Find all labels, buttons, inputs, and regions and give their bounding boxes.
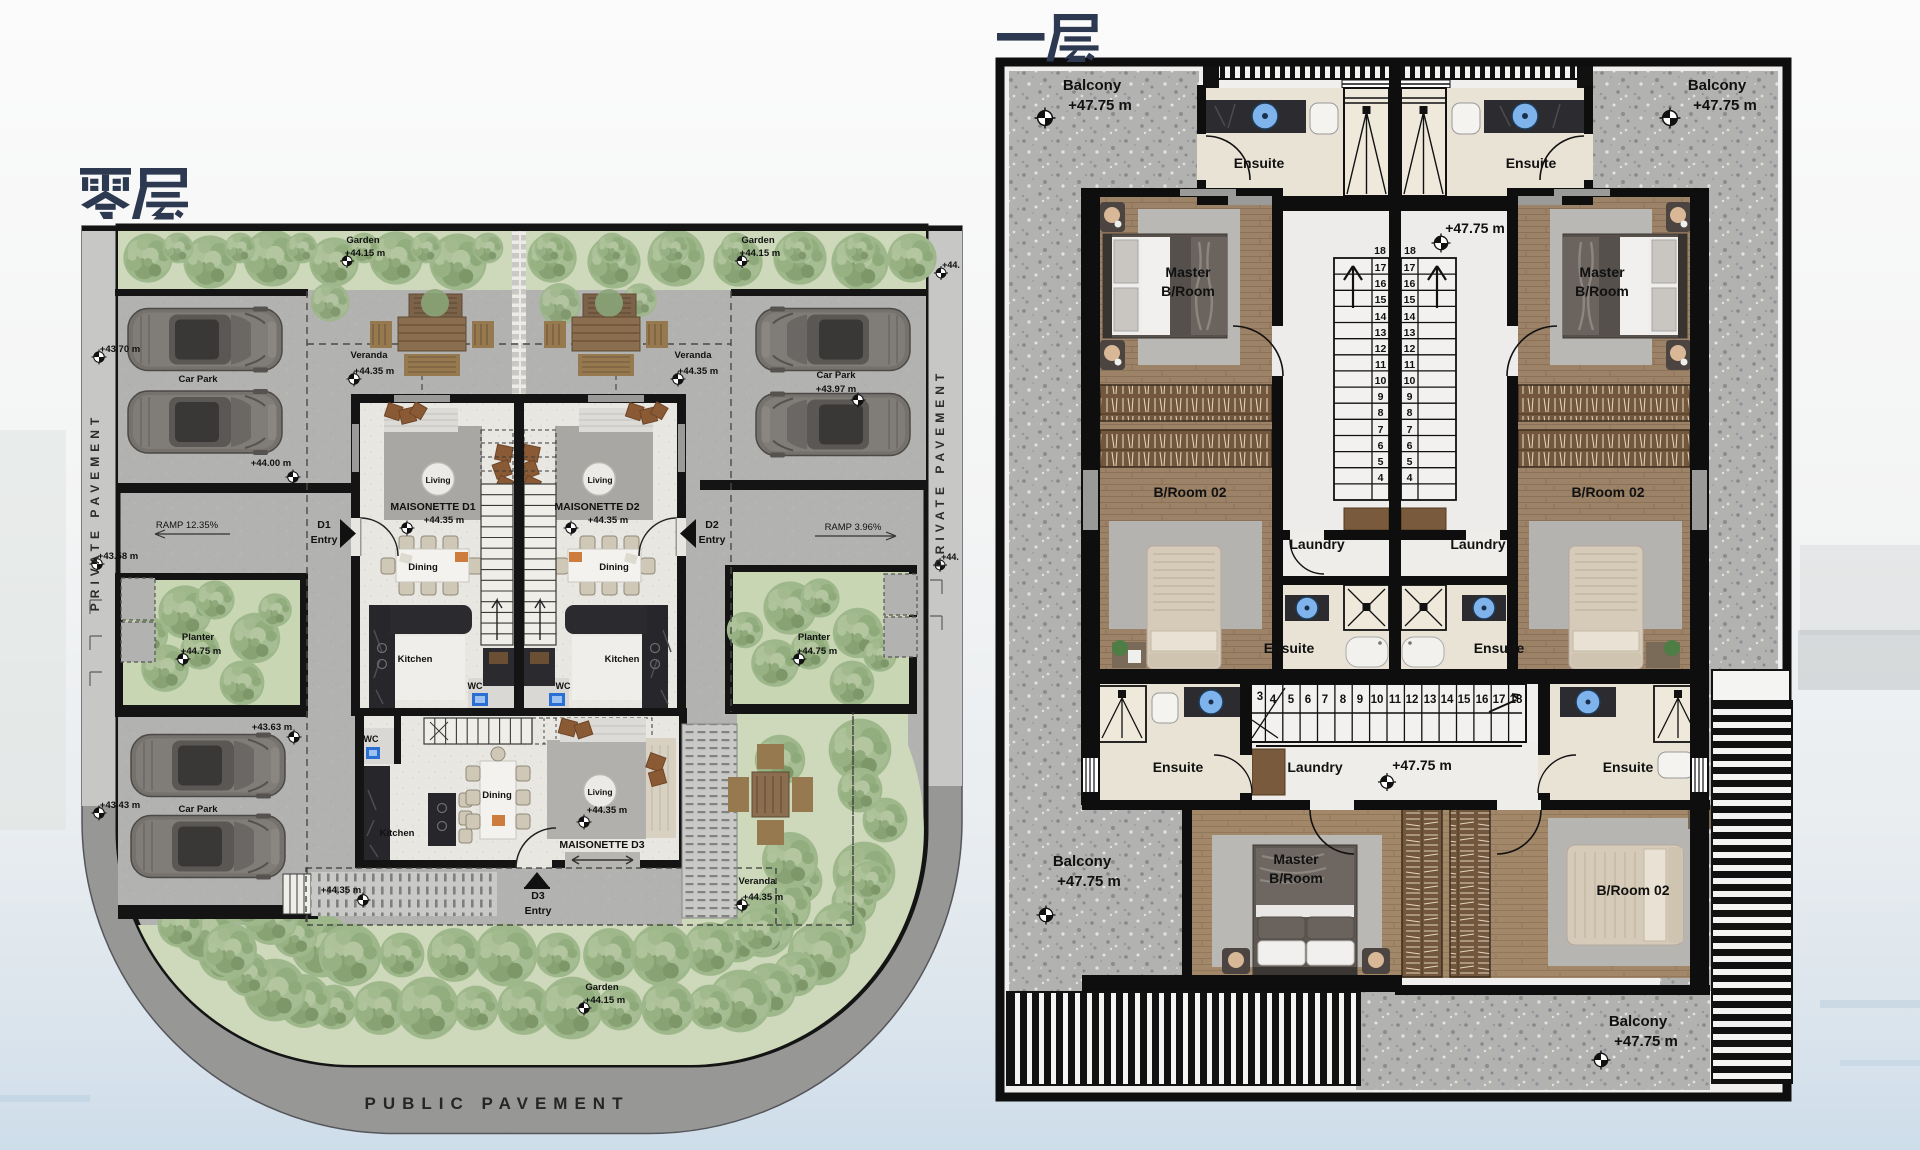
svg-text:12: 12 xyxy=(1406,694,1419,706)
svg-text:Car Park: Car Park xyxy=(816,370,856,381)
svg-text:7: 7 xyxy=(1407,424,1413,436)
svg-text:10: 10 xyxy=(1404,375,1416,387)
svg-text:18: 18 xyxy=(1510,694,1523,706)
svg-text:+47.75 m: +47.75 m xyxy=(1068,97,1132,114)
svg-text:Entry: Entry xyxy=(699,534,726,546)
svg-text:10: 10 xyxy=(1371,694,1384,706)
svg-text:Living: Living xyxy=(587,787,612,797)
svg-text:Master: Master xyxy=(1273,851,1319,867)
svg-text:5: 5 xyxy=(1378,456,1384,468)
svg-text:RAMP 12.35%: RAMP 12.35% xyxy=(156,520,219,531)
svg-text:WC: WC xyxy=(556,681,571,691)
svg-text:D3: D3 xyxy=(531,890,545,902)
svg-text:Garden: Garden xyxy=(585,982,618,993)
svg-text:+44.35 m: +44.35 m xyxy=(354,366,394,377)
svg-text:D2: D2 xyxy=(705,519,719,531)
svg-text:16: 16 xyxy=(1476,694,1489,706)
svg-text:8: 8 xyxy=(1340,694,1347,706)
svg-text:+47.75 m: +47.75 m xyxy=(1392,757,1452,773)
svg-text:+44.35 m: +44.35 m xyxy=(743,892,783,903)
svg-text:7: 7 xyxy=(1378,424,1384,436)
svg-text:+43.70 m: +43.70 m xyxy=(100,344,140,355)
svg-text:Kitchen: Kitchen xyxy=(605,654,640,665)
svg-text:4: 4 xyxy=(1378,472,1384,484)
svg-text:PUBLIC PAVEMENT: PUBLIC PAVEMENT xyxy=(365,1094,630,1113)
svg-text:B/Room 02: B/Room 02 xyxy=(1571,484,1644,500)
svg-text:+44.35 m: +44.35 m xyxy=(321,885,361,896)
svg-text:+47.75 m: +47.75 m xyxy=(1057,873,1121,890)
svg-text:WC: WC xyxy=(364,734,379,744)
svg-text:Balcony: Balcony xyxy=(1609,1013,1668,1030)
svg-text:12: 12 xyxy=(1375,343,1387,355)
svg-text:Dining: Dining xyxy=(482,790,512,801)
svg-text:8: 8 xyxy=(1407,407,1413,419)
svg-text:9: 9 xyxy=(1378,391,1384,403)
svg-text:B/Room: B/Room xyxy=(1575,283,1629,299)
svg-text:Ensuite: Ensuite xyxy=(1474,640,1525,656)
svg-text:+43.43 m: +43.43 m xyxy=(100,800,140,811)
svg-text:Laundry: Laundry xyxy=(1287,759,1342,775)
svg-text:Ensuite: Ensuite xyxy=(1264,640,1315,656)
svg-text:14: 14 xyxy=(1404,311,1416,323)
svg-text:+44.35 m: +44.35 m xyxy=(424,515,464,526)
svg-text:PRIVATE PAVEMENT: PRIVATE PAVEMENT xyxy=(933,369,947,567)
svg-text:+44.35 m: +44.35 m xyxy=(587,805,627,816)
svg-text:Garden: Garden xyxy=(741,235,774,246)
svg-text:17: 17 xyxy=(1493,694,1506,706)
svg-text:6: 6 xyxy=(1305,694,1311,706)
svg-text:6: 6 xyxy=(1378,440,1384,452)
svg-text:Master: Master xyxy=(1579,264,1625,280)
svg-text:Entry: Entry xyxy=(525,905,552,917)
svg-text:10: 10 xyxy=(1375,375,1387,387)
svg-text:Balcony: Balcony xyxy=(1688,77,1747,94)
svg-text:8: 8 xyxy=(1378,407,1384,419)
svg-text:+43.97 m: +43.97 m xyxy=(816,384,856,395)
svg-text:Living: Living xyxy=(425,475,450,485)
svg-text:D1: D1 xyxy=(317,519,331,531)
svg-text:Car Park: Car Park xyxy=(178,804,218,815)
svg-text:WC: WC xyxy=(468,681,483,691)
svg-text:Planter: Planter xyxy=(182,632,215,643)
svg-text:PRIVATE PAVEMENT: PRIVATE PAVEMENT xyxy=(88,413,102,611)
svg-text:Laundry: Laundry xyxy=(1289,536,1344,552)
svg-text:11: 11 xyxy=(1375,359,1386,371)
svg-text:13: 13 xyxy=(1404,327,1416,339)
svg-text:Dining: Dining xyxy=(408,562,438,573)
svg-text:Planter: Planter xyxy=(798,632,831,643)
svg-text:5: 5 xyxy=(1288,694,1295,706)
svg-text:MAISONETTE D3: MAISONETTE D3 xyxy=(559,839,644,851)
svg-text:Dining: Dining xyxy=(599,562,629,573)
svg-text:B/Room 02: B/Room 02 xyxy=(1153,484,1226,500)
svg-text:17: 17 xyxy=(1375,262,1387,274)
svg-text:15: 15 xyxy=(1404,294,1416,306)
svg-text:5: 5 xyxy=(1407,456,1413,468)
svg-text:Kitchen: Kitchen xyxy=(380,828,415,839)
svg-text:3: 3 xyxy=(1257,691,1263,703)
svg-text:4: 4 xyxy=(1270,694,1277,706)
svg-text:11: 11 xyxy=(1389,694,1402,706)
svg-text:13: 13 xyxy=(1424,694,1437,706)
svg-text:9: 9 xyxy=(1407,391,1413,403)
svg-text:Balcony: Balcony xyxy=(1063,77,1122,94)
svg-text:+47.75 m: +47.75 m xyxy=(1693,97,1757,114)
svg-text:Ensuite: Ensuite xyxy=(1234,155,1285,171)
svg-text:Laundry: Laundry xyxy=(1450,536,1505,552)
svg-text:6: 6 xyxy=(1407,440,1413,452)
svg-text:MAISONETTE D2: MAISONETTE D2 xyxy=(554,501,639,513)
svg-text:14: 14 xyxy=(1441,694,1454,706)
svg-text:Ensuite: Ensuite xyxy=(1506,155,1557,171)
svg-text:MAISONETTE D1: MAISONETTE D1 xyxy=(390,501,475,513)
svg-text:+44.35 m: +44.35 m xyxy=(678,366,718,377)
svg-text:+47.75 m: +47.75 m xyxy=(1614,1033,1678,1050)
svg-text:Living: Living xyxy=(587,475,612,485)
svg-text:12: 12 xyxy=(1404,343,1416,355)
svg-text:Veranda: Veranda xyxy=(351,350,389,361)
svg-text:+44.35 m: +44.35 m xyxy=(588,515,628,526)
svg-text:+44.: +44. xyxy=(942,260,960,270)
svg-text:+44.00 m: +44.00 m xyxy=(251,458,291,469)
svg-text:+43.63 m: +43.63 m xyxy=(252,722,292,733)
svg-text:+44.15 m: +44.15 m xyxy=(585,995,625,1006)
svg-text:15: 15 xyxy=(1375,294,1387,306)
svg-text:Entry: Entry xyxy=(311,534,338,546)
svg-text:Balcony: Balcony xyxy=(1053,853,1112,870)
svg-text:7: 7 xyxy=(1322,694,1328,706)
svg-text:16: 16 xyxy=(1404,278,1416,290)
svg-text:Ensuite: Ensuite xyxy=(1603,759,1654,775)
svg-text:15: 15 xyxy=(1458,694,1471,706)
svg-text:9: 9 xyxy=(1357,694,1363,706)
svg-text:18: 18 xyxy=(1404,245,1416,257)
svg-text:14: 14 xyxy=(1375,311,1387,323)
svg-text:16: 16 xyxy=(1375,278,1387,290)
svg-text:18: 18 xyxy=(1374,245,1386,257)
svg-text:Veranda: Veranda xyxy=(675,350,713,361)
svg-text:Car Park: Car Park xyxy=(178,374,218,385)
svg-text:RAMP 3.96%: RAMP 3.96% xyxy=(825,522,882,533)
svg-text:Veranda: Veranda xyxy=(739,876,777,887)
svg-text:Garden: Garden xyxy=(346,235,379,246)
svg-text:Master: Master xyxy=(1165,264,1211,280)
svg-text:11: 11 xyxy=(1404,359,1415,371)
svg-text:B/Room: B/Room xyxy=(1161,283,1215,299)
svg-text:B/Room 02: B/Room 02 xyxy=(1596,882,1669,898)
svg-text:Ensuite: Ensuite xyxy=(1153,759,1204,775)
svg-text:13: 13 xyxy=(1375,327,1387,339)
svg-text:+43.58 m: +43.58 m xyxy=(98,551,138,562)
svg-text:17: 17 xyxy=(1404,262,1416,274)
svg-text:+47.75 m: +47.75 m xyxy=(1445,220,1505,236)
svg-text:Kitchen: Kitchen xyxy=(398,654,433,665)
svg-text:4: 4 xyxy=(1407,472,1413,484)
svg-text:B/Room: B/Room xyxy=(1269,870,1323,886)
